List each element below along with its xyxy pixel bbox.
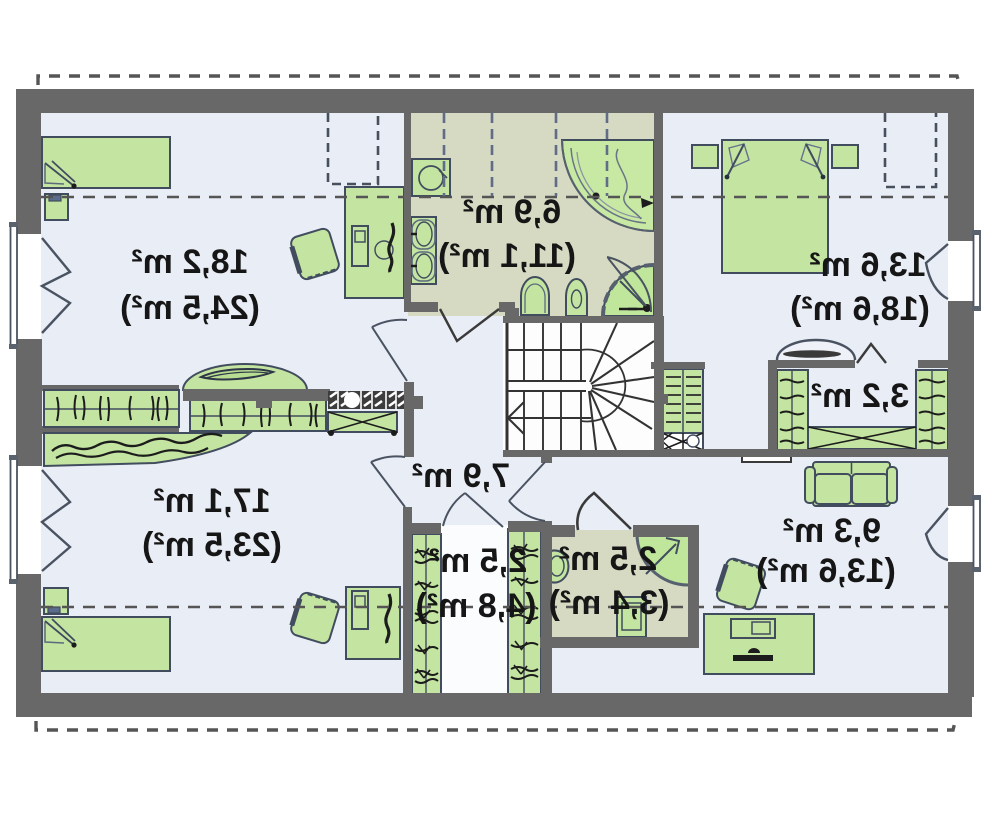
svg-text:(23,5 m²): (23,5 m²) <box>142 526 282 564</box>
svg-text:(4,8 m²): (4,8 m²) <box>416 587 537 625</box>
svg-text:(24,5 m²): (24,5 m²) <box>120 289 260 327</box>
svg-text:9,3 m²: 9,3 m² <box>783 512 881 550</box>
svg-text:(3,4 m²): (3,4 m²) <box>549 584 670 622</box>
svg-text:2,5 m²: 2,5 m² <box>429 542 527 580</box>
svg-text:(18,6 m²): (18,6 m²) <box>790 290 930 328</box>
svg-text:7,9 m²: 7,9 m² <box>412 457 510 495</box>
svg-text:3,2 m²: 3,2 m² <box>811 377 909 415</box>
svg-text:17,1 m²: 17,1 m² <box>153 482 270 520</box>
svg-text:2,5 m²: 2,5 m² <box>559 540 657 578</box>
svg-text:(11,1 m²): (11,1 m²) <box>438 237 576 275</box>
svg-text:(13,6 m²): (13,6 m²) <box>756 552 896 590</box>
svg-text:6,9 m²: 6,9 m² <box>463 193 561 231</box>
svg-text:13,6 m²: 13,6 m² <box>809 246 926 284</box>
svg-text:18,2 m²: 18,2 m² <box>131 243 248 281</box>
